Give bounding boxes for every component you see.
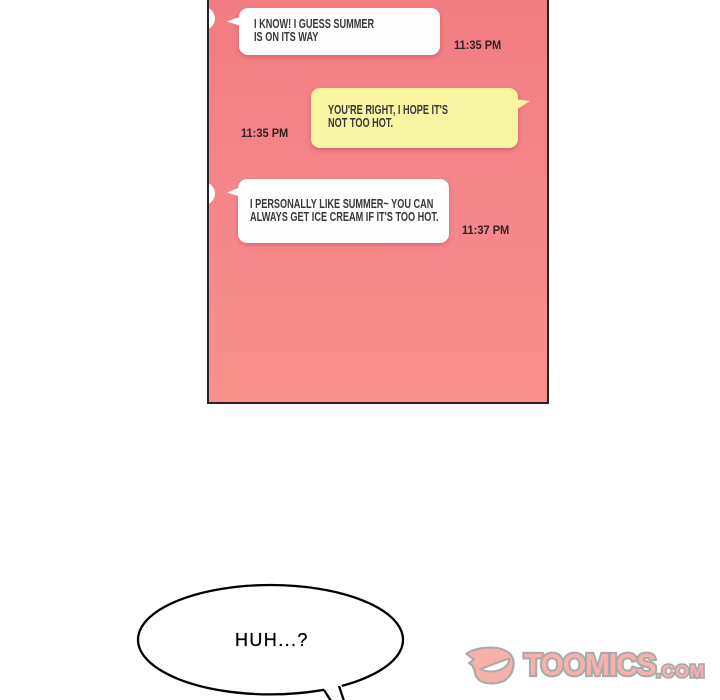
- svg-text:.COM: .COM: [656, 661, 705, 681]
- svg-text:TOOMICS: TOOMICS: [524, 647, 656, 682]
